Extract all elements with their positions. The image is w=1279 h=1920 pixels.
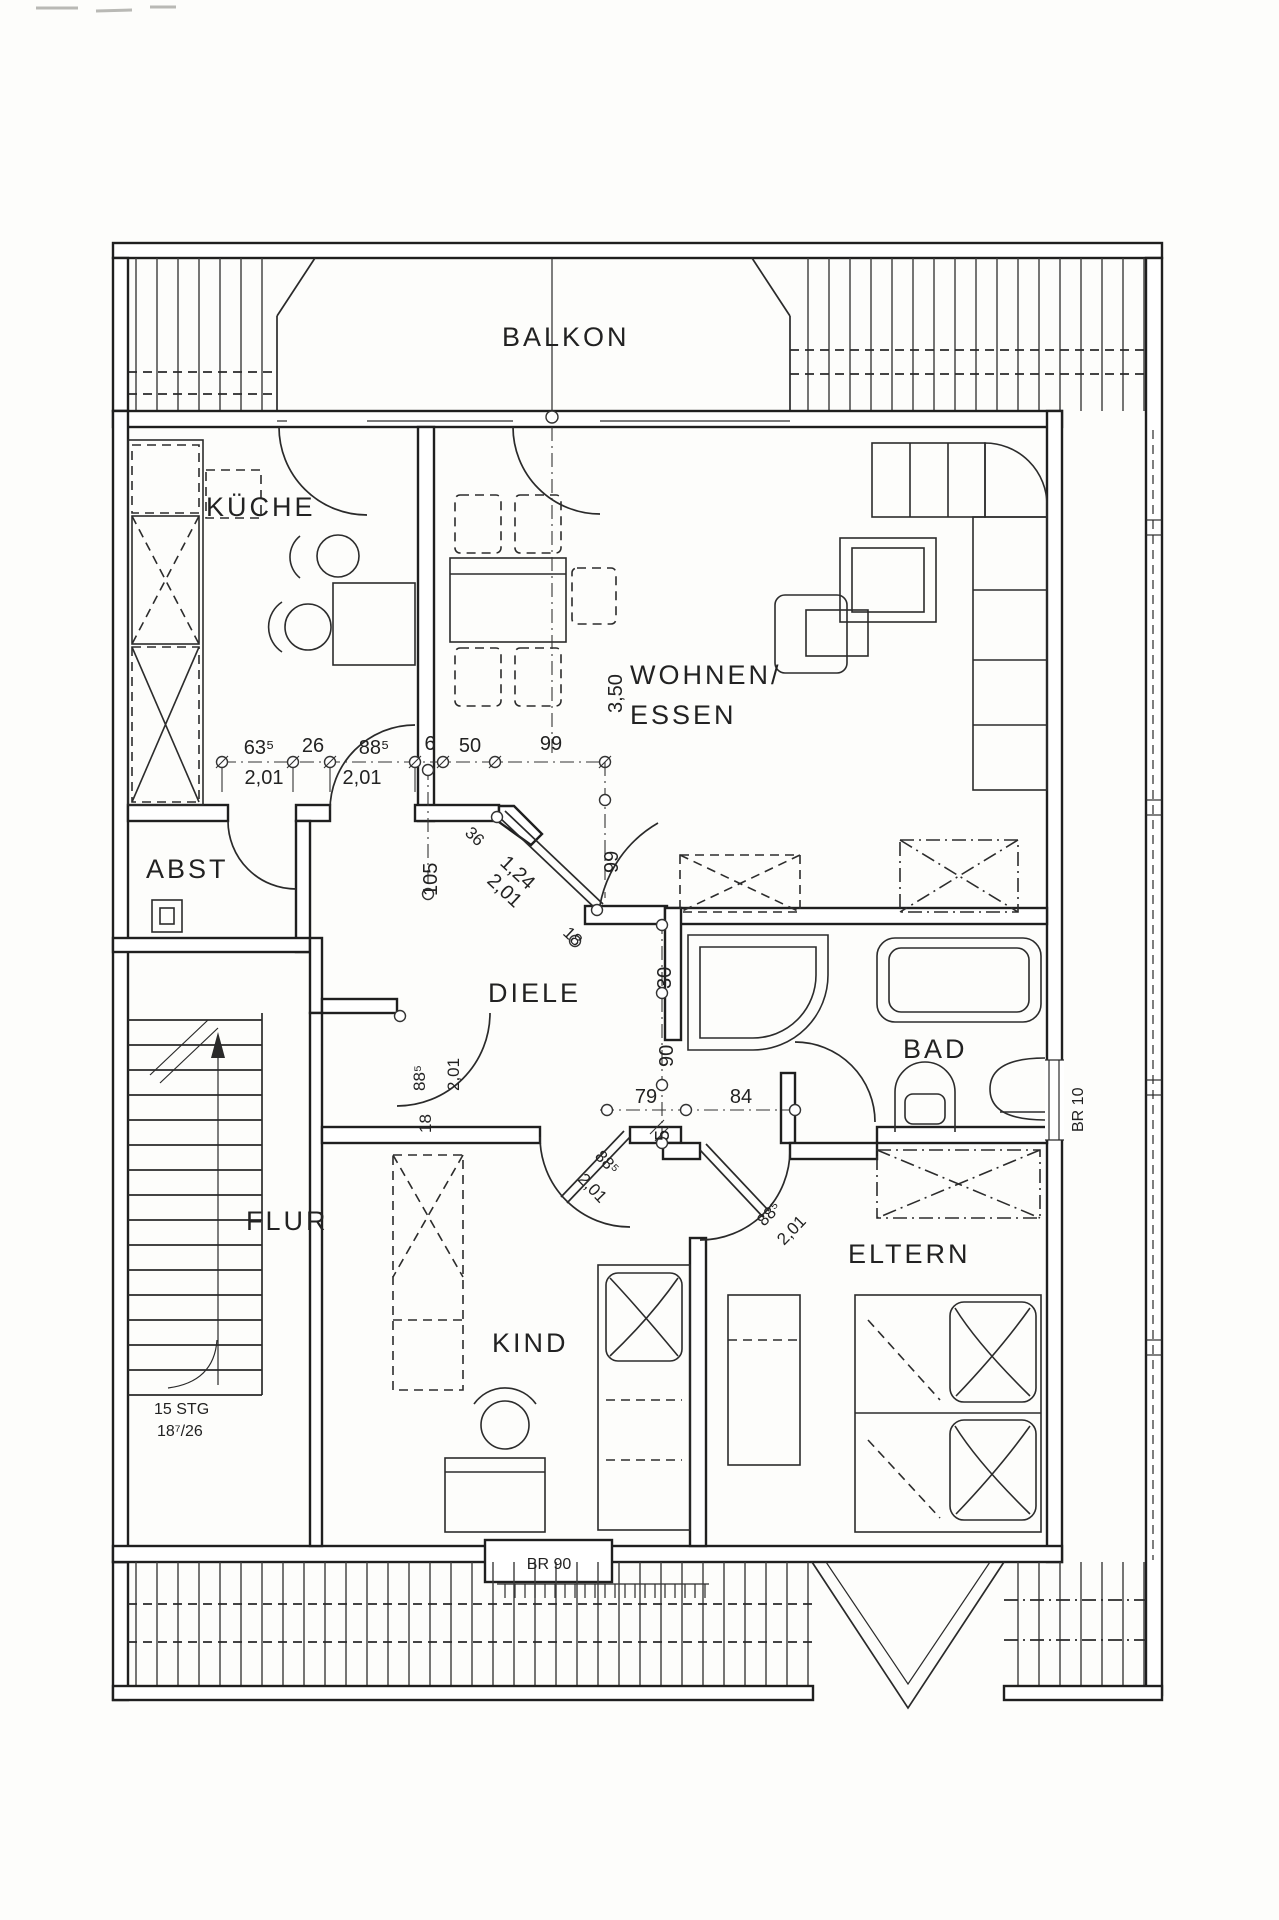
room-label-eltern: ELTERN: [848, 1239, 971, 1269]
room-label-abst: ABST: [146, 854, 229, 884]
dim-right-5: 5: [652, 1130, 674, 1141]
dim-chain-635: 63⁵: [244, 737, 275, 759]
dim-chain-885: 88⁵: [359, 737, 390, 759]
room-label-bad: BAD: [903, 1034, 968, 1064]
dim-flurdoor-18: 18: [416, 1114, 435, 1133]
room-label-kind: KIND: [492, 1328, 569, 1358]
floor-plan-page: 63⁵ 26 88⁵ 6 50 99 2,01 2,01 3,50 105 36…: [0, 0, 1279, 1920]
dim-chain-6: 6: [424, 733, 435, 755]
dim-bottom-79: 79: [635, 1086, 657, 1108]
outer-edges: [113, 258, 1162, 1700]
dim-chain-50: 50: [459, 735, 481, 757]
dim-bottom-84: 84: [730, 1086, 752, 1108]
stairs-step: 18⁷/26: [157, 1423, 203, 1440]
room-label-wohnen: WOHNEN/: [630, 660, 782, 690]
room-label-essen: ESSEN: [630, 700, 737, 730]
walls: [113, 411, 1062, 1562]
room-label-flur: FLUR: [246, 1206, 329, 1236]
dining-furniture: [450, 495, 616, 706]
abst-box: [152, 900, 182, 932]
window-br90: BR 90: [527, 1556, 572, 1573]
dim-flurdoor-201: 2,01: [444, 1058, 463, 1091]
dim-diag-18: 18: [559, 923, 586, 950]
dim-chain-26: 26: [302, 735, 324, 757]
room-label-diele: DIELE: [488, 978, 581, 1008]
dim-chain-99: 99: [540, 733, 562, 755]
dim-elterndoor-885: 88⁵: [753, 1198, 785, 1230]
dim-right-90: 90: [656, 1045, 678, 1067]
window-right: [1045, 1060, 1064, 1140]
dim-door-201-left: 2,01: [245, 767, 284, 789]
doors: [228, 427, 875, 1240]
dim-diag-36: 36: [461, 823, 488, 850]
room-labels: BALKON KÜCHE WOHNEN/ ESSEN ABST DIELE BA…: [146, 322, 971, 1358]
scan-artifacts: [36, 7, 176, 11]
dim-right-30: 30: [654, 967, 676, 989]
dim-door-201-right: 2,01: [343, 767, 382, 789]
dim-living-door-99: 99: [601, 851, 623, 873]
room-label-kueche: KÜCHE: [206, 492, 316, 522]
dim-kinddoor-201: 2,01: [574, 1170, 611, 1207]
balcony-band-bottom: [113, 1562, 1162, 1708]
balcony-band-top: [113, 243, 1162, 413]
floor-plan-svg: 63⁵ 26 88⁵ 6 50 99 2,01 2,01 3,50 105 36…: [0, 0, 1279, 1920]
stairs-count: 15 STG: [154, 1401, 209, 1418]
room-label-balkon: BALKON: [502, 322, 630, 352]
window-br10: BR 10: [1070, 1087, 1087, 1132]
dim-hall-105: 105: [420, 863, 442, 896]
dim-flurdoor-885: 88⁵: [410, 1065, 429, 1091]
stairs: [128, 1013, 262, 1395]
dim-living-depth: 3,50: [605, 674, 627, 713]
dimension-texts: 63⁵ 26 88⁵ 6 50 99 2,01 2,01 3,50 105 36…: [154, 674, 1087, 1573]
